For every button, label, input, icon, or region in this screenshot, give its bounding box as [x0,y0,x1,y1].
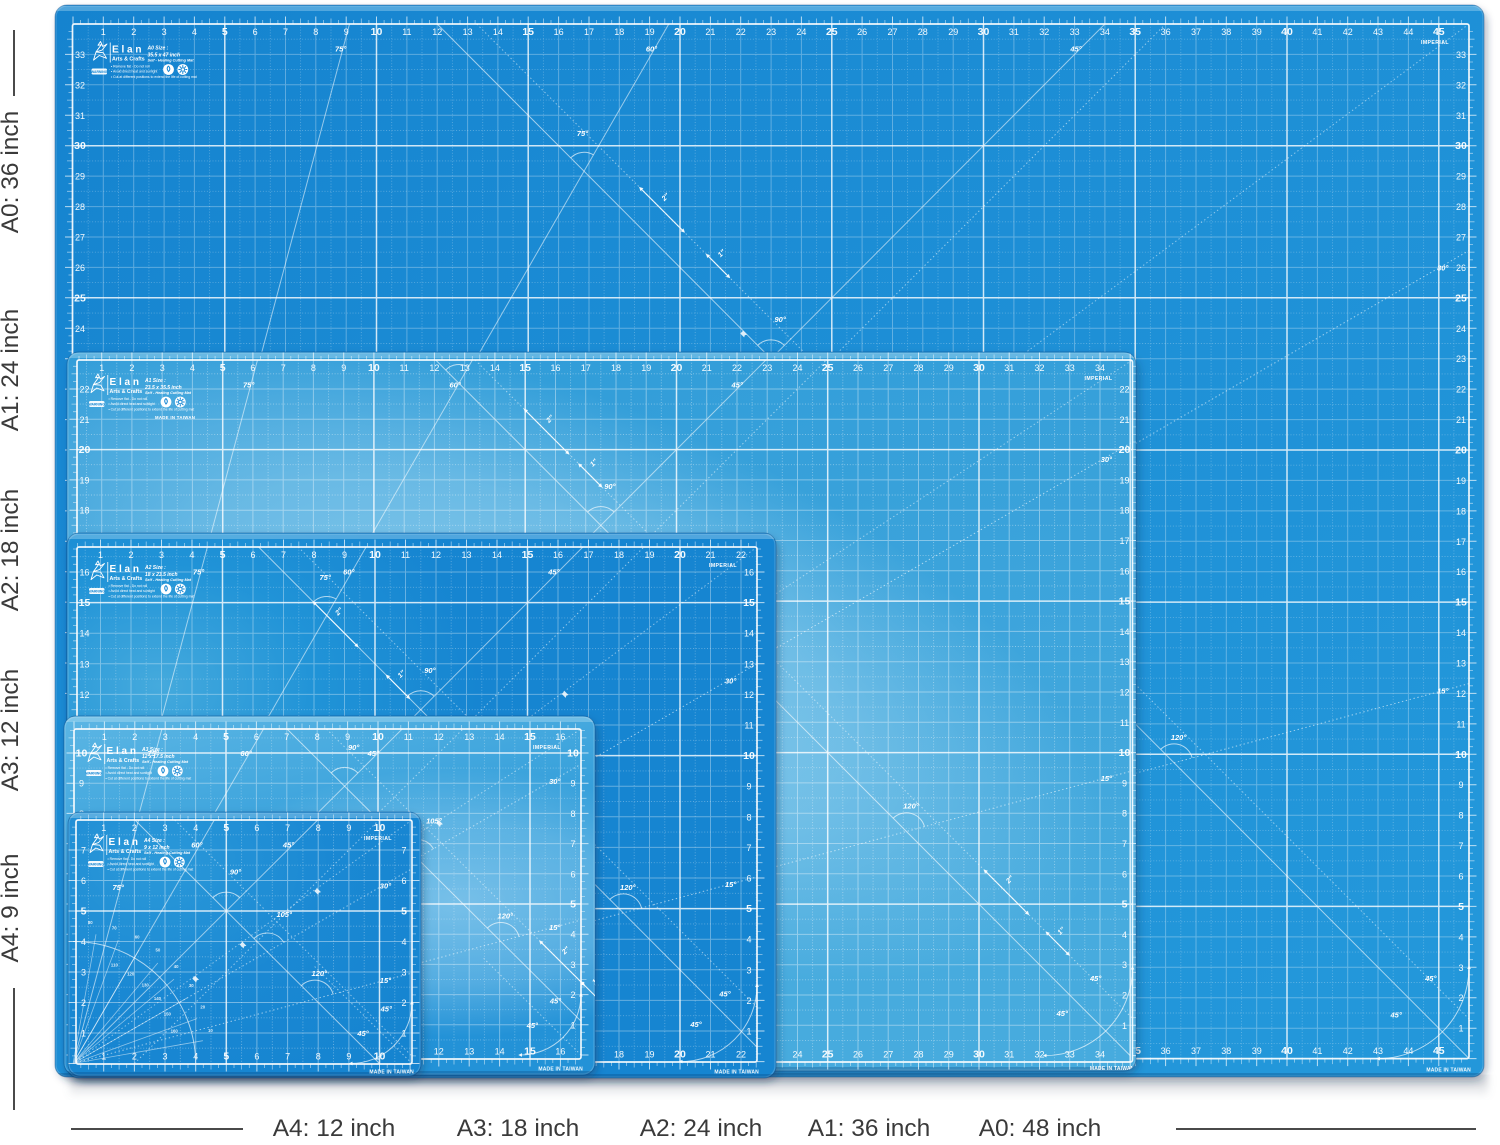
svg-text:• Avoid direct heat and sunlig: • Avoid direct heat and sunlight [109,402,155,406]
svg-text:27: 27 [883,1050,893,1060]
svg-text:15: 15 [1455,597,1467,609]
svg-text:10: 10 [371,26,383,38]
svg-text:15: 15 [1119,596,1131,608]
svg-text:30: 30 [973,1049,985,1061]
svg-text:45°: 45° [1424,974,1437,983]
svg-text:4: 4 [193,823,198,833]
svg-text:105°: 105° [426,817,443,826]
svg-text:8: 8 [316,823,321,833]
svg-text:30: 30 [74,140,86,152]
svg-text:4: 4 [401,937,406,947]
svg-text:12: 12 [429,363,439,373]
svg-text:45°: 45° [731,380,744,389]
svg-text:10: 10 [374,822,386,834]
svg-text:MADE IN TAIWAN: MADE IN TAIWAN [1426,1067,1471,1073]
svg-text:45°: 45° [547,568,560,577]
svg-text:25: 25 [826,26,838,38]
svg-text:29: 29 [944,363,954,373]
svg-text:15: 15 [519,362,531,374]
svg-text:19: 19 [1119,475,1129,485]
svg-text:39: 39 [1252,1046,1262,1056]
svg-text:Self - Healing Cutting Mat: Self - Healing Cutting Mat [145,578,192,582]
svg-text:• Remove flat - Do not roll: • Remove flat - Do not roll [111,65,150,69]
svg-text:1: 1 [81,1029,86,1039]
svg-text:7: 7 [285,1052,290,1062]
svg-text:13: 13 [464,732,474,742]
svg-text:45°: 45° [689,1020,702,1029]
svg-text:16: 16 [550,363,560,373]
svg-text:33: 33 [1070,27,1080,37]
svg-text:32: 32 [1039,27,1049,37]
svg-text:43: 43 [1373,27,1383,37]
svg-text:120°: 120° [498,912,515,921]
svg-text:20: 20 [1119,444,1131,456]
svg-text:WARNING: WARNING [89,402,106,406]
svg-text:26: 26 [853,363,863,373]
svg-text:• Cut at different positions t: • Cut at different positions to extend t… [108,868,194,872]
svg-text:17: 17 [584,27,594,37]
svg-text:22: 22 [79,385,89,395]
svg-text:14: 14 [1119,627,1129,637]
svg-text:18: 18 [79,506,89,516]
svg-text:5: 5 [81,906,87,918]
svg-text:43: 43 [1373,1046,1383,1056]
svg-text:9: 9 [79,779,84,789]
svg-text:37: 37 [1191,27,1201,37]
svg-text:42: 42 [1343,27,1353,37]
svg-text:9: 9 [346,823,351,833]
svg-text:8: 8 [316,1052,321,1062]
svg-text:10: 10 [1119,747,1131,759]
svg-text:• Avoid direct heat and sunlig: • Avoid direct heat and sunlight [106,771,152,775]
svg-text:MADE IN TAIWAN: MADE IN TAIWAN [155,415,195,420]
svg-text:20: 20 [79,444,91,456]
svg-text:13: 13 [1119,657,1129,667]
svg-text:26: 26 [857,27,867,37]
svg-text:15°: 15° [549,923,561,932]
svg-text:25: 25 [74,292,86,304]
svg-text:120°: 120° [903,802,920,811]
svg-text:10: 10 [1455,749,1467,761]
svg-text:6: 6 [570,869,575,879]
svg-text:15°: 15° [1437,687,1449,696]
svg-text:36: 36 [1161,27,1171,37]
svg-text:42: 42 [1343,1046,1353,1056]
svg-text:14: 14 [79,629,89,639]
svg-text:2: 2 [570,990,575,1000]
svg-text:90°: 90° [230,867,242,876]
svg-text:31: 31 [1004,1050,1014,1060]
svg-text:IMPERIAL: IMPERIAL [709,563,737,569]
svg-text:Arts & Crafts: Arts & Crafts [110,576,143,582]
svg-text:45°: 45° [1056,1009,1069,1018]
svg-text:13: 13 [1456,659,1466,669]
svg-text:28: 28 [913,363,923,373]
svg-text:45°: 45° [356,1029,369,1038]
svg-text:31: 31 [75,111,85,121]
svg-text:• Remove flat - Do not roll: • Remove flat - Do not roll [106,766,145,770]
svg-text:9: 9 [1122,778,1127,788]
svg-text:5: 5 [220,362,226,374]
svg-text:28: 28 [918,27,928,37]
svg-text:4: 4 [193,732,198,742]
svg-text:19: 19 [645,27,655,37]
svg-text:3: 3 [81,968,86,978]
svg-text:30: 30 [978,26,990,38]
svg-text:10: 10 [374,1051,386,1063]
svg-text:18: 18 [614,550,624,560]
svg-text:18: 18 [614,1050,624,1060]
svg-text:3: 3 [162,1052,167,1062]
svg-text:Self - Healing Cutting Mat: Self - Healing Cutting Mat [148,58,195,62]
svg-text:32: 32 [1034,1050,1044,1060]
svg-text:31: 31 [1456,111,1466,121]
svg-text:27: 27 [75,233,85,243]
svg-text:7: 7 [401,846,406,856]
svg-text:7: 7 [281,363,286,373]
svg-text:12: 12 [744,690,754,700]
svg-text:10: 10 [208,1028,213,1033]
svg-text:16: 16 [555,732,565,742]
svg-text:2: 2 [132,1052,137,1062]
svg-text:16: 16 [1119,566,1129,576]
svg-text:1: 1 [1122,1021,1127,1031]
svg-text:10: 10 [372,731,384,743]
svg-text:Self - Healing Cutting Mat: Self - Healing Cutting Mat [145,391,192,395]
svg-text:130: 130 [142,983,150,988]
svg-text:44: 44 [1403,1046,1413,1056]
svg-text:17: 17 [1119,536,1129,546]
svg-text:8: 8 [570,809,575,819]
svg-text:• Cut at different positions t: • Cut at different positions to extend t… [109,408,195,412]
svg-text:2: 2 [132,823,137,833]
svg-text:12: 12 [79,690,89,700]
svg-text:23: 23 [762,363,772,373]
svg-text:41: 41 [1312,1046,1322,1056]
svg-text:32: 32 [75,80,85,90]
svg-text:13: 13 [464,1047,474,1057]
svg-text:1: 1 [570,1020,575,1030]
svg-text:120°: 120° [312,969,329,978]
svg-text:9: 9 [344,27,349,37]
svg-text:60°: 60° [191,841,203,850]
svg-text:8: 8 [1458,811,1463,821]
svg-text:105°: 105° [276,910,293,919]
svg-text:45°: 45° [380,1005,393,1014]
svg-text:3: 3 [746,965,751,975]
svg-text:A2 Size :: A2 Size : [144,565,166,571]
svg-text:6: 6 [1122,869,1127,879]
svg-text:14: 14 [744,629,754,639]
svg-text:12: 12 [1456,689,1466,699]
svg-text:4: 4 [193,1052,198,1062]
svg-text:90°: 90° [604,482,616,491]
svg-text:23: 23 [1456,354,1466,364]
svg-text:28: 28 [75,202,85,212]
svg-text:19: 19 [644,550,654,560]
svg-text:30°: 30° [1437,264,1449,273]
svg-text:Arts & Crafts: Arts & Crafts [112,57,145,63]
svg-text:IMPERIAL: IMPERIAL [1085,376,1113,382]
svg-text:11: 11 [400,363,409,373]
svg-text:A1: 24 inch: A1: 24 inch [0,309,24,432]
svg-text:IMPERIAL: IMPERIAL [364,836,392,842]
svg-text:15: 15 [743,597,755,609]
svg-text:16: 16 [744,568,754,578]
svg-text:7: 7 [1458,841,1463,851]
svg-text:9: 9 [342,550,347,560]
svg-text:20: 20 [671,362,683,374]
svg-text:34: 34 [1100,27,1110,37]
svg-text:3: 3 [162,823,167,833]
svg-text:A0: 48 inch: A0: 48 inch [979,1115,1102,1140]
svg-text:14: 14 [495,1047,505,1057]
svg-text:• Remove flat - Do not roll: • Remove flat - Do not roll [109,584,148,588]
svg-text:A0 Size :: A0 Size : [147,46,169,52]
svg-text:E l a n: E l a n [112,45,141,56]
svg-text:24: 24 [75,324,85,334]
svg-text:16: 16 [79,568,89,578]
svg-text:19: 19 [1456,476,1466,486]
svg-text:5: 5 [570,899,576,911]
svg-text:Arts & Crafts: Arts & Crafts [107,758,140,764]
svg-text:40: 40 [174,964,179,969]
svg-text:3: 3 [160,363,165,373]
svg-text:7: 7 [746,843,751,853]
svg-text:4: 4 [189,550,194,560]
svg-text:5: 5 [401,906,407,918]
svg-text:32: 32 [1456,80,1466,90]
svg-text:27: 27 [883,363,893,373]
svg-text:26: 26 [853,1050,863,1060]
svg-text:28: 28 [1456,202,1466,212]
svg-text:120°: 120° [1171,733,1188,742]
svg-text:33: 33 [75,50,85,60]
svg-text:21: 21 [705,550,715,560]
svg-text:1: 1 [401,1029,406,1039]
svg-text:20: 20 [674,26,686,38]
svg-text:27: 27 [887,27,897,37]
svg-text:13: 13 [461,550,471,560]
svg-text:29: 29 [944,1050,954,1060]
svg-text:23: 23 [766,27,776,37]
svg-text:7: 7 [281,550,286,560]
svg-text:22: 22 [736,27,746,37]
svg-text:15: 15 [79,597,91,609]
svg-text:4: 4 [1458,932,1463,942]
svg-text:24: 24 [796,27,806,37]
svg-text:37: 37 [1191,1046,1201,1056]
svg-text:44: 44 [1403,27,1413,37]
svg-text:A3 Size :: A3 Size : [141,747,163,753]
svg-text:15°: 15° [1101,774,1113,783]
svg-text:2: 2 [1458,993,1463,1003]
svg-text:38: 38 [1221,27,1231,37]
svg-text:A3: 12 inch: A3: 12 inch [0,669,24,792]
svg-text:75°: 75° [193,568,205,577]
svg-text:14: 14 [1456,628,1466,638]
svg-text:8: 8 [315,732,320,742]
svg-text:45°: 45° [1390,1011,1403,1020]
svg-text:30: 30 [189,983,194,988]
svg-text:2: 2 [401,998,406,1008]
svg-text:A2: 24 inch: A2: 24 inch [640,1115,763,1140]
svg-text:9: 9 [746,782,751,792]
svg-text:35: 35 [1129,26,1141,38]
svg-text:5: 5 [223,822,229,834]
svg-text:12: 12 [1119,688,1129,698]
svg-text:120: 120 [127,971,135,976]
svg-text:11: 11 [744,721,753,731]
svg-text:14: 14 [492,550,502,560]
svg-text:33: 33 [1065,363,1075,373]
svg-text:IMPERIAL: IMPERIAL [533,745,561,751]
svg-text:36: 36 [1161,1046,1171,1056]
svg-text:45°: 45° [1069,44,1082,53]
svg-text:A4 Size :: A4 Size : [143,838,165,844]
svg-text:140: 140 [154,996,162,1001]
svg-text:2: 2 [129,363,134,373]
svg-text:1: 1 [98,550,103,560]
svg-text:19: 19 [644,1050,654,1060]
svg-text:11: 11 [402,27,411,37]
svg-text:30: 30 [973,362,985,374]
svg-text:8: 8 [313,27,318,37]
svg-text:3: 3 [159,550,164,560]
svg-text:Self - Healing Cutting Mat: Self - Healing Cutting Mat [142,760,189,764]
svg-text:50: 50 [156,948,161,953]
svg-text:4: 4 [570,930,575,940]
svg-text:18: 18 [614,27,624,37]
svg-text:120°: 120° [620,883,637,892]
svg-text:21: 21 [705,27,715,37]
svg-text:26: 26 [1456,263,1466,273]
svg-text:9: 9 [1458,780,1463,790]
svg-text:2: 2 [1122,991,1127,1001]
svg-text:WARNING: WARNING [86,771,103,775]
svg-text:10: 10 [368,362,380,374]
svg-text:24: 24 [1456,324,1466,334]
svg-text:34: 34 [1095,363,1105,373]
svg-text:30: 30 [1455,140,1467,152]
svg-text:13: 13 [463,27,473,37]
svg-text:7: 7 [284,732,289,742]
svg-text:30°: 30° [725,677,737,686]
svg-text:• Cut at different positions t: • Cut at different positions to extend t… [106,777,192,781]
svg-text:21: 21 [1119,415,1129,425]
svg-text:6: 6 [254,823,259,833]
svg-text:20: 20 [674,1049,686,1061]
svg-text:A2: 18 inch: A2: 18 inch [0,489,24,612]
svg-text:1: 1 [1458,1024,1463,1034]
svg-text:40: 40 [1281,26,1293,38]
svg-text:15: 15 [524,731,536,743]
svg-text:14: 14 [490,363,500,373]
svg-text:6: 6 [254,1052,259,1062]
svg-text:10: 10 [567,748,579,760]
svg-text:25: 25 [822,1049,834,1061]
svg-text:22: 22 [736,550,746,560]
svg-text:9: 9 [346,1052,351,1062]
svg-text:18: 18 [1119,506,1129,516]
svg-text:E l a n: E l a n [107,746,136,757]
svg-text:75°: 75° [577,129,589,138]
svg-text:8: 8 [311,550,316,560]
svg-text:E l a n: E l a n [110,377,139,388]
svg-text:24: 24 [792,1050,802,1060]
svg-text:2: 2 [128,550,133,560]
svg-text:45°: 45° [367,749,380,758]
svg-text:15: 15 [522,26,534,38]
svg-text:31: 31 [1009,27,1019,37]
svg-text:4: 4 [746,935,751,945]
svg-text:MADE IN TAIWAN: MADE IN TAIWAN [714,1070,759,1076]
svg-text:90°: 90° [348,743,360,752]
svg-text:29: 29 [75,172,85,182]
svg-text:1: 1 [102,732,107,742]
svg-text:60°: 60° [240,749,252,758]
svg-text:11: 11 [401,550,410,560]
svg-text:60: 60 [135,935,140,940]
svg-text:WARNING: WARNING [89,589,106,593]
svg-text:14: 14 [493,27,503,37]
svg-text:A1: 36 inch: A1: 36 inch [808,1115,931,1140]
svg-text:4: 4 [1122,930,1127,940]
svg-text:39: 39 [1252,27,1262,37]
svg-text:20: 20 [674,549,686,561]
svg-text:27: 27 [1456,233,1466,243]
svg-text:3: 3 [570,960,575,970]
svg-text:25: 25 [822,362,834,374]
svg-text:6: 6 [746,874,751,884]
svg-text:2: 2 [132,732,137,742]
svg-text:60°: 60° [646,44,658,53]
svg-text:33: 33 [1456,50,1466,60]
svg-text:11: 11 [1120,718,1129,728]
svg-text:MADE IN TAIWAN: MADE IN TAIWAN [538,1067,583,1073]
svg-text:7: 7 [81,846,86,856]
svg-text:Arts & Crafts: Arts & Crafts [110,389,143,395]
svg-text:75°: 75° [243,380,255,389]
svg-text:A0: 36 inch: A0: 36 inch [0,111,24,234]
svg-text:WARNING: WARNING [91,70,108,74]
svg-text:17: 17 [1456,537,1466,547]
svg-text:29: 29 [1456,172,1466,182]
svg-text:7: 7 [1122,839,1127,849]
svg-text:3: 3 [162,27,167,37]
svg-text:75°: 75° [320,573,332,582]
svg-text:16: 16 [555,1047,565,1057]
svg-text:21: 21 [79,415,89,425]
svg-text:• Remove flat - Do not roll: • Remove flat - Do not roll [109,397,148,401]
svg-text:6: 6 [250,550,255,560]
svg-text:38: 38 [1221,1046,1231,1056]
svg-text:1: 1 [101,823,106,833]
svg-text:7: 7 [285,823,290,833]
svg-text:8: 8 [746,812,751,822]
svg-text:28: 28 [913,1050,923,1060]
svg-text:Self - Healing Cutting Mat: Self - Healing Cutting Mat [144,851,191,855]
svg-text:3: 3 [163,732,168,742]
svg-text:E l a n: E l a n [110,564,139,575]
svg-text:60°: 60° [343,568,355,577]
svg-text:4: 4 [192,27,197,37]
svg-text:75°: 75° [113,883,125,892]
svg-text:21: 21 [705,1050,715,1060]
svg-text:160: 160 [171,1029,179,1034]
svg-text:A4: 9 inch: A4: 9 inch [0,854,24,963]
svg-text:6: 6 [250,363,255,373]
